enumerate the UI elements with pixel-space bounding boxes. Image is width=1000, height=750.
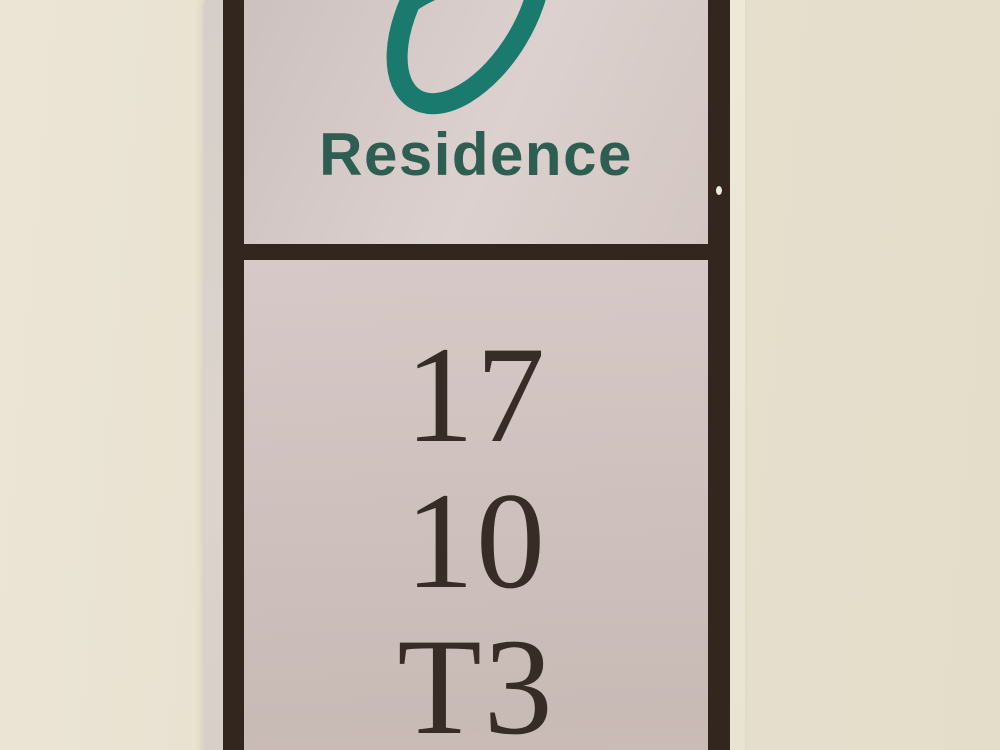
unit-panel: 17 10 T3 (244, 260, 708, 750)
unit-line-floor: 17 (244, 322, 708, 468)
brand-panel: Residence (244, 0, 708, 244)
scene: Residence 17 10 T3 (0, 0, 1000, 750)
plate-edge-left (205, 0, 223, 750)
plate-frame: Residence 17 10 T3 (223, 0, 730, 750)
plate-edge-right (730, 0, 745, 750)
unit-line-tower: T3 (244, 614, 708, 750)
brand-name: Residence (244, 124, 708, 186)
unit-line-number: 10 (244, 468, 708, 614)
signage-plate: Residence 17 10 T3 (205, 0, 745, 750)
plate-face: Residence 17 10 T3 (244, 0, 708, 750)
paint-speck (716, 186, 722, 195)
swirl-logo-icon (385, 0, 605, 126)
panel-divider (244, 244, 708, 260)
